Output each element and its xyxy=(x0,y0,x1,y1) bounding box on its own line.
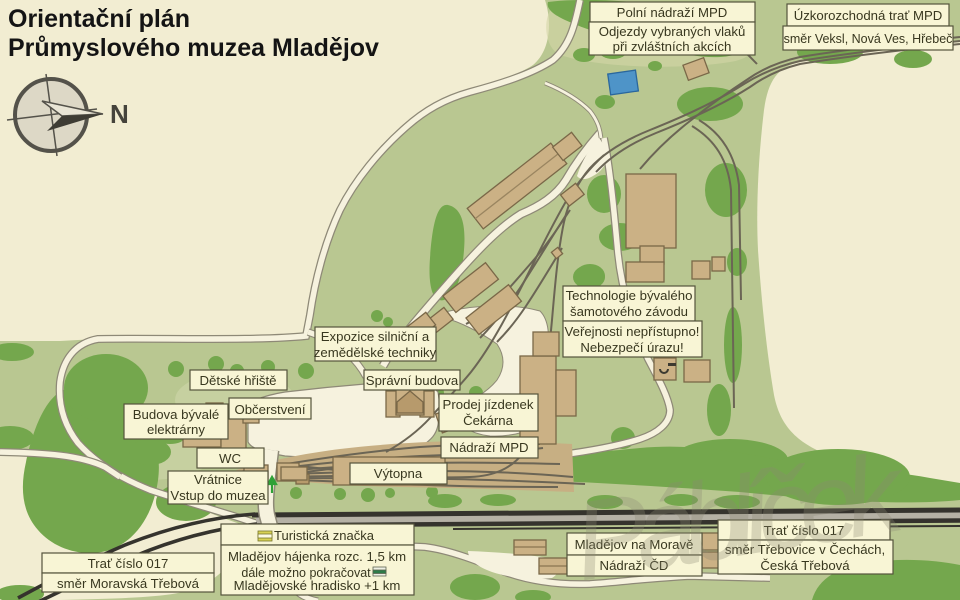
svg-text:Polní nádraží MPD: Polní nádraží MPD xyxy=(617,5,728,20)
svg-text:Mladějovské hradisko +1 km: Mladějovské hradisko +1 km xyxy=(234,578,401,593)
svg-text:Technologie bývalého: Technologie bývalého xyxy=(566,288,693,303)
svg-text:Mladějov hájenka rozc. 1,5 km: Mladějov hájenka rozc. 1,5 km xyxy=(228,549,406,564)
svg-text:Nebezpečí úrazu!: Nebezpečí úrazu! xyxy=(580,340,683,355)
svg-text:Výtopna: Výtopna xyxy=(374,466,423,481)
svg-text:Občerstvení: Občerstvení xyxy=(234,402,305,417)
svg-text:Čekárna: Čekárna xyxy=(463,413,514,428)
svg-text:Průmyslového muzea Mladějov: Průmyslového muzea Mladějov xyxy=(8,34,379,62)
svg-text:WC: WC xyxy=(219,451,241,466)
svg-text:Vrátnice: Vrátnice xyxy=(194,472,242,487)
svg-text:N: N xyxy=(110,99,129,129)
svg-text:Trať číslo 017: Trať číslo 017 xyxy=(88,556,169,571)
svg-text:směr Moravská Třebová: směr Moravská Třebová xyxy=(57,576,200,591)
svg-text:Dětské hřiště: Dětské hřiště xyxy=(200,373,277,388)
svg-text:Turistická značka: Turistická značka xyxy=(274,528,375,543)
svg-text:elektrárny: elektrárny xyxy=(147,422,205,437)
svg-text:zemědělské techniky: zemědělské techniky xyxy=(314,345,437,360)
svg-text:Správní budova: Správní budova xyxy=(366,373,459,388)
svg-text:Expozice silniční a: Expozice silniční a xyxy=(321,329,430,344)
svg-text:Prodej jízdenek: Prodej jízdenek xyxy=(443,397,534,412)
svg-text:Nádraží MPD: Nádraží MPD xyxy=(449,440,528,455)
svg-text:Vstup do muzea: Vstup do muzea xyxy=(170,488,266,503)
svg-text:Orientační plán: Orientační plán xyxy=(8,5,190,33)
svg-text:šamotového závodu: šamotového závodu xyxy=(570,304,688,319)
svg-text:při zvláštních akcích: při zvláštních akcích xyxy=(613,39,732,54)
svg-text:Budova bývalé: Budova bývalé xyxy=(133,407,220,422)
svg-text:Veřejnosti nepřístupno!: Veřejnosti nepřístupno! xyxy=(565,324,700,339)
svg-text:Odjezdy vybraných vlaků: Odjezdy vybraných vlaků xyxy=(599,24,746,39)
svg-text:Úzkorozchodná trať MPD: Úzkorozchodná trať MPD xyxy=(794,8,943,23)
svg-text:směr Veksl, Nová Ves, Hřebeč: směr Veksl, Nová Ves, Hřebeč xyxy=(784,32,953,46)
